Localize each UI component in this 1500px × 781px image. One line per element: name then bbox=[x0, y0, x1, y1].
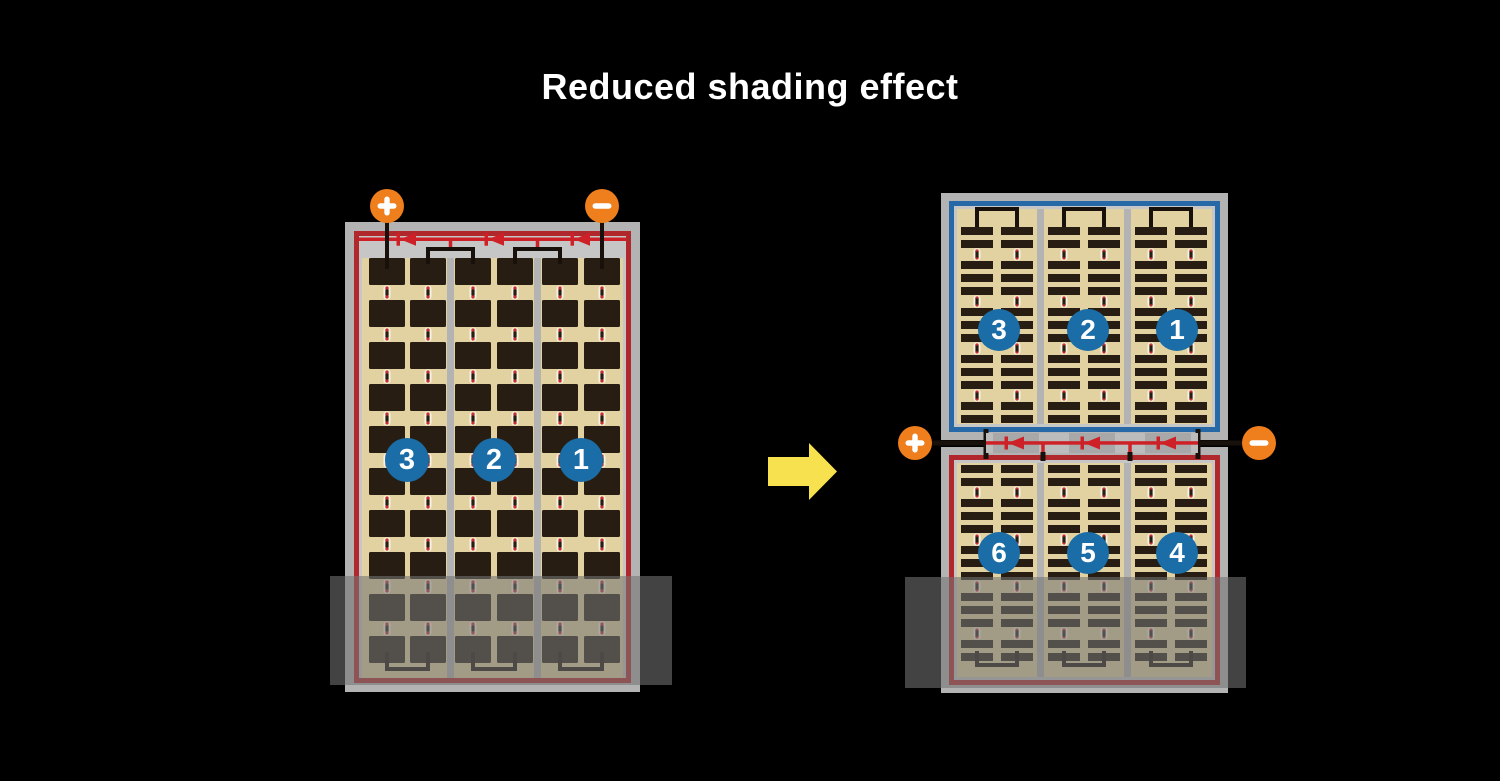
shading-overlay-right bbox=[905, 577, 1246, 688]
diagram-canvas: Reduced shading effect 321321654 bbox=[0, 0, 1500, 781]
string-number-badge: 5 bbox=[1067, 532, 1109, 574]
left-negative-terminal-icon bbox=[585, 189, 619, 223]
string-divider bbox=[1124, 209, 1131, 424]
string-number-badge: 1 bbox=[1156, 309, 1198, 351]
string-number-badge: 3 bbox=[978, 309, 1020, 351]
string-number-badge: 2 bbox=[1067, 309, 1109, 351]
string-number-badge: 3 bbox=[385, 438, 429, 482]
string-number-badge: 2 bbox=[472, 438, 516, 482]
left-positive-terminal-icon bbox=[370, 189, 404, 223]
right-negative-terminal-icon bbox=[1242, 426, 1276, 460]
string-divider bbox=[1037, 209, 1044, 424]
right-positive-terminal-icon bbox=[898, 426, 932, 460]
string-number-badge: 1 bbox=[559, 438, 603, 482]
center-junction-wiring bbox=[898, 426, 1280, 462]
string-number-badge: 6 bbox=[978, 532, 1020, 574]
shading-overlay-left bbox=[330, 576, 672, 685]
transition-arrow-icon bbox=[760, 438, 850, 508]
string-number-badge: 4 bbox=[1156, 532, 1198, 574]
diagram-title: Reduced shading effect bbox=[0, 66, 1500, 108]
